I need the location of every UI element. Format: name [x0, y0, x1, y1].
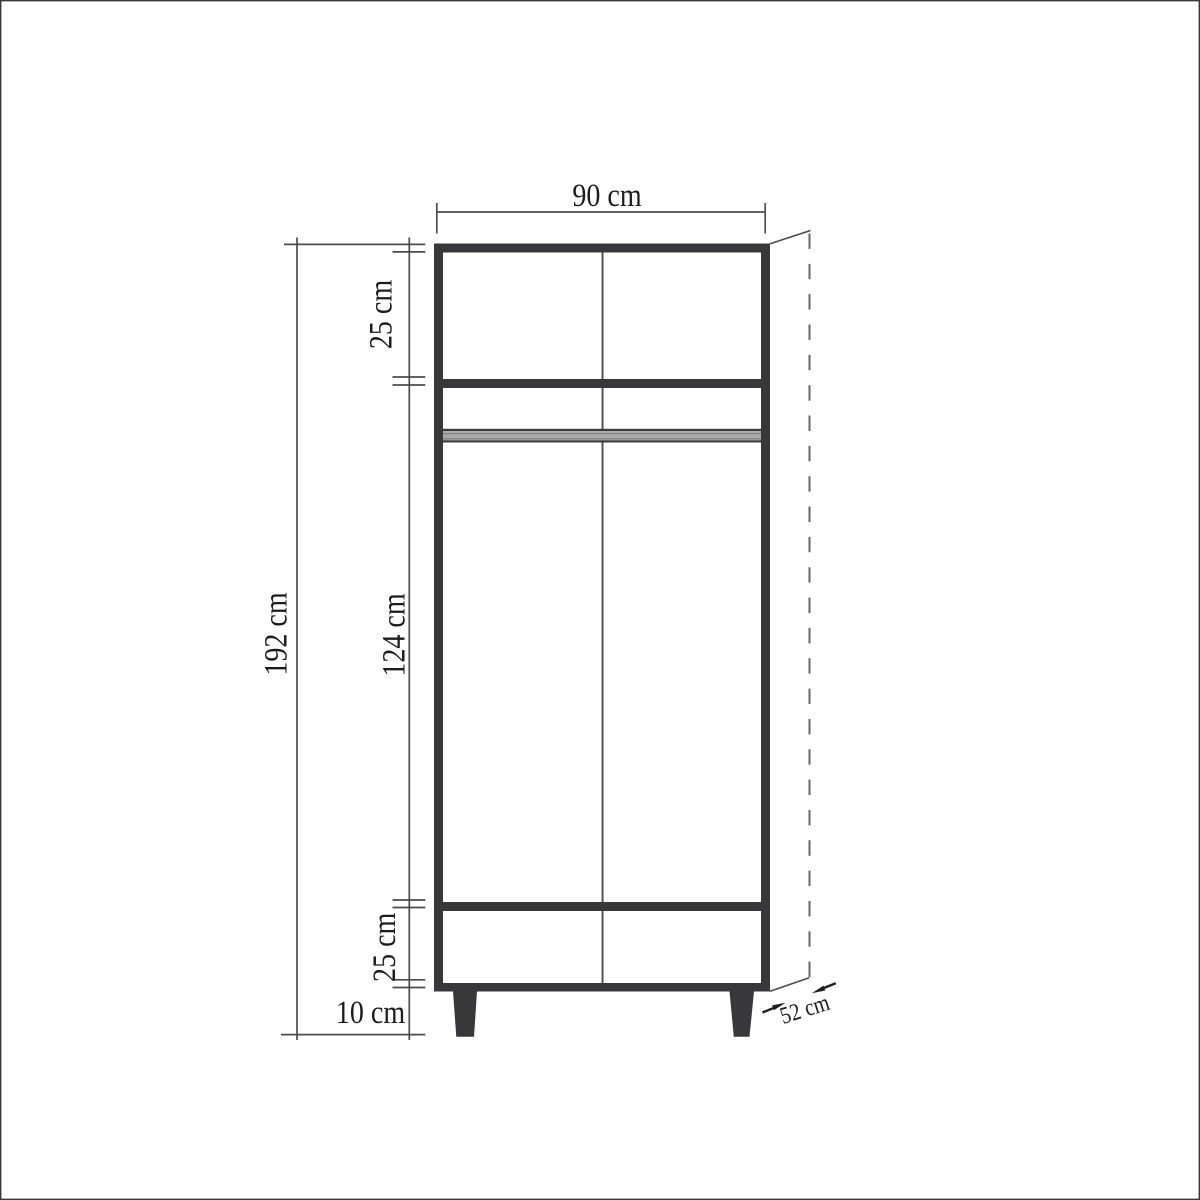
svg-text:90 cm: 90 cm [572, 177, 641, 214]
svg-text:25 cm: 25 cm [366, 912, 403, 981]
svg-text:124 cm: 124 cm [375, 593, 412, 676]
svg-text:192 cm: 192 cm [257, 592, 294, 675]
svg-text:25 cm: 25 cm [362, 280, 399, 349]
svg-text:52 cm: 52 cm [776, 988, 832, 1029]
svg-text:10 cm: 10 cm [336, 994, 405, 1031]
